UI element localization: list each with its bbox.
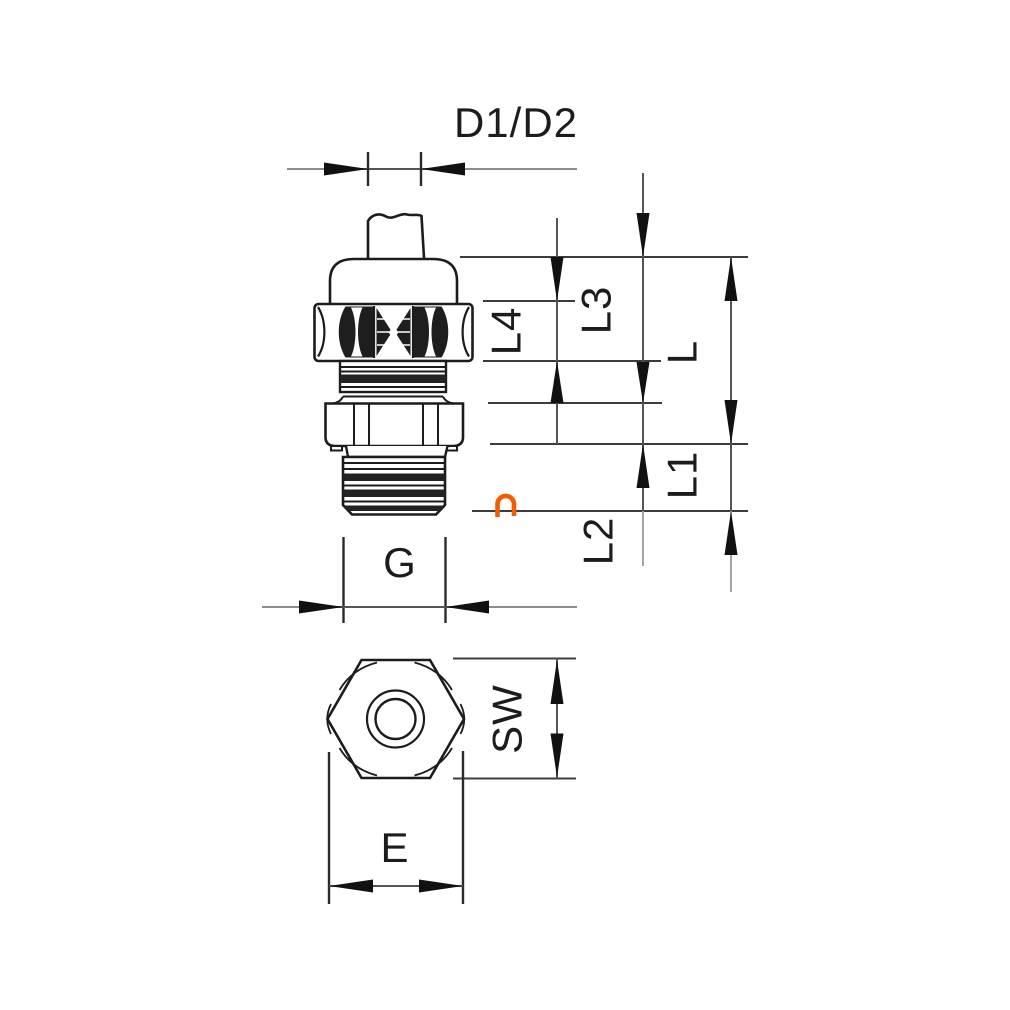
dim-label-g: G bbox=[383, 539, 417, 586]
dim-l-l1: L L1 bbox=[659, 257, 738, 592]
arrowhead bbox=[299, 601, 344, 614]
arrowhead bbox=[419, 880, 463, 893]
arrowhead bbox=[324, 163, 368, 176]
arrowhead bbox=[421, 163, 465, 176]
sealing-ribs bbox=[340, 361, 446, 392]
dim-label-l4: L4 bbox=[483, 307, 530, 356]
dim-label-l1: L1 bbox=[659, 451, 706, 500]
dome-cap bbox=[330, 259, 457, 304]
arrowhead bbox=[637, 213, 650, 257]
dim-label-l3: L3 bbox=[573, 286, 620, 335]
arrowhead bbox=[446, 601, 490, 614]
arrowhead bbox=[637, 444, 650, 488]
arrowhead bbox=[551, 734, 564, 778]
dim-d1-d2: D1/D2 bbox=[287, 99, 578, 186]
side-view bbox=[315, 214, 473, 514]
arrowhead bbox=[725, 257, 738, 301]
dim-label-e: E bbox=[380, 824, 409, 871]
arrowhead bbox=[725, 511, 738, 555]
arrowhead bbox=[329, 880, 373, 893]
hex-foot-left bbox=[331, 446, 342, 451]
arrowhead bbox=[551, 660, 564, 704]
dim-l4: L4 bbox=[483, 218, 564, 444]
cable-gland-dimension-drawing: D1/D2 L4 L3 L2 L L1 bbox=[0, 0, 1010, 1010]
orange-n-watermark bbox=[498, 496, 515, 517]
dim-l3: L3 L2 bbox=[573, 173, 650, 566]
dim-label-l2: L2 bbox=[575, 517, 622, 566]
hex-nut bbox=[326, 404, 464, 451]
cable-stub bbox=[368, 214, 424, 258]
arrowhead bbox=[551, 257, 564, 301]
drawing-canvas: D1/D2 L4 L3 L2 L L1 bbox=[0, 0, 1010, 1010]
knurled-ring bbox=[315, 304, 473, 361]
dim-g: G bbox=[262, 537, 577, 623]
dim-label-d1-d2: D1/D2 bbox=[454, 99, 578, 146]
arrowhead bbox=[637, 362, 650, 403]
dim-label-l: L bbox=[659, 340, 706, 364]
bottom-view bbox=[327, 660, 464, 778]
threaded-stem bbox=[343, 457, 445, 515]
arrowhead bbox=[551, 361, 564, 403]
dim-label-sw: SW bbox=[484, 684, 531, 754]
neck bbox=[346, 446, 448, 457]
dim-sw: SW bbox=[453, 659, 576, 779]
arrowhead bbox=[725, 400, 738, 444]
